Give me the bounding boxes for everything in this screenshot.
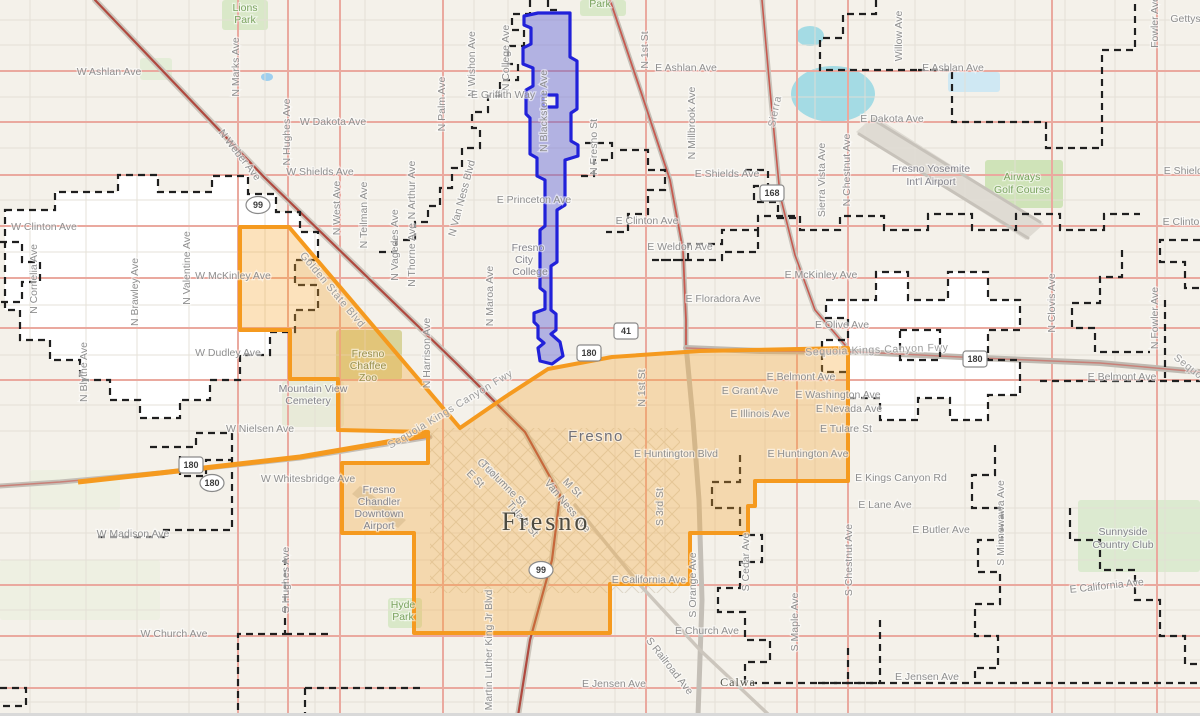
map-label: S Minnewawa Ave: [995, 480, 1007, 566]
map-label: E Dakota Ave: [860, 113, 924, 125]
route-shield-180: 180: [200, 475, 224, 492]
map-label: W Ashlan Ave: [77, 66, 142, 78]
map-label: E Ashlan Ave: [922, 62, 984, 74]
map-label: Hyde: [391, 599, 416, 611]
map-label: E Nevada Ave: [816, 403, 883, 415]
map-label: Gettysburg: [1170, 13, 1200, 25]
route-shield-180: 180: [179, 457, 203, 473]
route-shield-180: 180: [577, 345, 601, 361]
map-label: S Chestnut Ave: [843, 524, 855, 596]
map-label: E Floradora Ave: [685, 293, 760, 305]
map-label: E Huntington Blvd: [634, 448, 718, 460]
map-label: E Illinois Ave: [730, 408, 789, 420]
map-label: E Weldon Ave: [647, 241, 713, 253]
svg-text:180: 180: [967, 354, 982, 364]
map-label: N Vagedes Ave: [389, 209, 401, 281]
map-label: N Fresno St: [588, 119, 600, 175]
map-label: Calwa: [720, 675, 756, 689]
svg-text:99: 99: [253, 200, 263, 210]
map-label: N Palm Ave: [436, 77, 448, 132]
map-label: E Ashlan Ave: [655, 62, 717, 74]
map-label: W Nielsen Ave: [226, 423, 294, 435]
svg-text:180: 180: [183, 460, 198, 470]
map-label: W Dudley Ave: [195, 347, 261, 359]
map-label: Cemetery: [285, 395, 331, 407]
map-label: E Jensen Ave: [895, 671, 959, 683]
map-label: E Grant Ave: [722, 385, 779, 397]
map-label: N Fowler Ave: [1149, 287, 1161, 349]
map-label: Fresno: [568, 428, 624, 445]
map-label: Park: [392, 611, 414, 623]
map-label: E Church Ave: [675, 625, 739, 637]
map-label: E McKinley Ave: [785, 269, 858, 281]
route-shield-99: 99: [246, 197, 270, 214]
map-label: Chandler: [358, 496, 401, 508]
map-label: E Jensen Ave: [582, 678, 646, 690]
map-label: S Orange Ave: [687, 552, 699, 617]
map-label: N Millbrook Ave: [686, 86, 698, 159]
svg-text:180: 180: [204, 478, 219, 488]
map-label: Airport: [364, 520, 395, 532]
map-label: E Tulare St: [820, 423, 872, 435]
map-label: N West Ave: [331, 181, 343, 236]
map-label: N Blythe Ave: [78, 342, 90, 402]
map-label: N Maroa Ave: [484, 266, 496, 327]
route-shield-99: 99: [529, 562, 553, 579]
map-label: E Washington Ave: [795, 389, 880, 401]
map-label: E Kings Canyon Rd: [855, 472, 947, 484]
landuse-patch: [0, 560, 160, 620]
map-label: Fresno: [502, 507, 591, 536]
map-label: N Thorne Ave: [406, 223, 418, 287]
map-label: N Marks Ave: [230, 37, 242, 96]
map-label: College: [512, 266, 548, 278]
map-label: S Maple Ave: [789, 592, 801, 651]
map-label: E Lane Ave: [858, 499, 912, 511]
svg-text:41: 41: [621, 326, 631, 336]
map-label: W Madison Ave: [97, 528, 170, 540]
map-label: S 3rd St: [654, 488, 666, 526]
map-label: N Harrison Ave: [421, 318, 433, 389]
map-label: Golf Course: [994, 184, 1050, 196]
map-label: E Shields Ave: [695, 168, 760, 180]
map-label: Fresno: [512, 242, 545, 254]
map-label: W Clinton Ave: [11, 221, 77, 233]
map-label: N Cornelia Ave: [28, 244, 40, 314]
map-label: N Chestnut Ave: [841, 133, 853, 206]
map-label: Mountain View: [279, 383, 348, 395]
map-label: Airways: [1004, 171, 1041, 183]
map-label: E Clinton Ave: [616, 215, 679, 227]
map-label: E Belmont Ave: [767, 371, 836, 383]
map-label: Fresno: [352, 348, 385, 360]
map-label: Fresno: [363, 484, 396, 496]
map-label: Fowler Ave: [1149, 0, 1161, 48]
map-label: Sunnyside: [1098, 526, 1147, 538]
svg-text:168: 168: [764, 188, 779, 198]
landuse-patch: [948, 72, 1000, 92]
map-viewport[interactable]: 999941180180168180180LionsParkW Ashlan A…: [0, 0, 1200, 716]
map-label: Zoo: [359, 372, 377, 384]
route-shield-180: 180: [963, 351, 987, 367]
map-label: E Shields Ave: [1164, 165, 1200, 177]
water-body: [261, 73, 273, 81]
map-label: E Olive Ave: [815, 319, 869, 331]
map-label: E California Ave: [612, 574, 687, 586]
route-shield-41: 41: [614, 323, 638, 339]
map-label: N Clovis Ave: [1046, 273, 1058, 332]
svg-text:99: 99: [536, 565, 546, 575]
map-label: N Valentine Ave: [181, 231, 193, 305]
map-label: Downtown: [354, 508, 403, 520]
map-label: E Belmont Ave: [1088, 371, 1157, 383]
map-label: N 1st St: [636, 369, 648, 406]
map-label: W Whitesbridge Ave: [261, 473, 356, 485]
map-label: S Cedar Ave: [740, 532, 752, 591]
map-label: E Butler Ave: [912, 524, 970, 536]
map-label: S Hughes Ave: [280, 547, 292, 614]
map-label: Willow Ave: [893, 11, 905, 62]
map-label: Country Club: [1092, 539, 1153, 551]
map-label: N 1st St: [639, 31, 651, 68]
map-label: W Dakota Ave: [300, 116, 366, 128]
map-label: Lions: [232, 2, 257, 14]
map-label: Chaffee: [350, 360, 387, 372]
map-canvas[interactable]: 999941180180168180180LionsParkW Ashlan A…: [0, 0, 1200, 716]
map-label: Park: [234, 14, 256, 26]
map-label: W McKinley Ave: [195, 270, 271, 282]
map-label: Sierra Vista Ave: [816, 143, 828, 217]
route-shield-168: 168: [760, 185, 784, 201]
map-label: Park: [589, 0, 611, 10]
map-label: E Princeton Ave: [497, 194, 572, 206]
map-label: N Hughes Ave: [281, 98, 293, 165]
map-label: W Shields Ave: [286, 166, 354, 178]
map-label: E Huntington Ave: [768, 448, 849, 460]
map-label: E Griffith Way: [471, 89, 536, 101]
map-label: N Blackstone Ave: [538, 70, 550, 152]
map-label: Fresno Yosemite: [892, 163, 970, 175]
map-label: N Arthur Ave: [406, 160, 418, 219]
svg-text:180: 180: [581, 348, 596, 358]
map-label: E Clinton Ave: [1163, 216, 1200, 228]
map-label: City: [515, 254, 534, 266]
map-label: N Teilman Ave: [358, 181, 370, 248]
map-label: N Brawley Ave: [129, 258, 141, 326]
map-label: Martin Luther King Jr Blvd: [483, 589, 495, 710]
map-label: Int'l Airport: [906, 176, 955, 188]
map-label: W Church Ave: [141, 628, 208, 640]
map-label: N Wishon Ave: [466, 31, 478, 97]
map-label: N College Ave: [500, 25, 512, 92]
